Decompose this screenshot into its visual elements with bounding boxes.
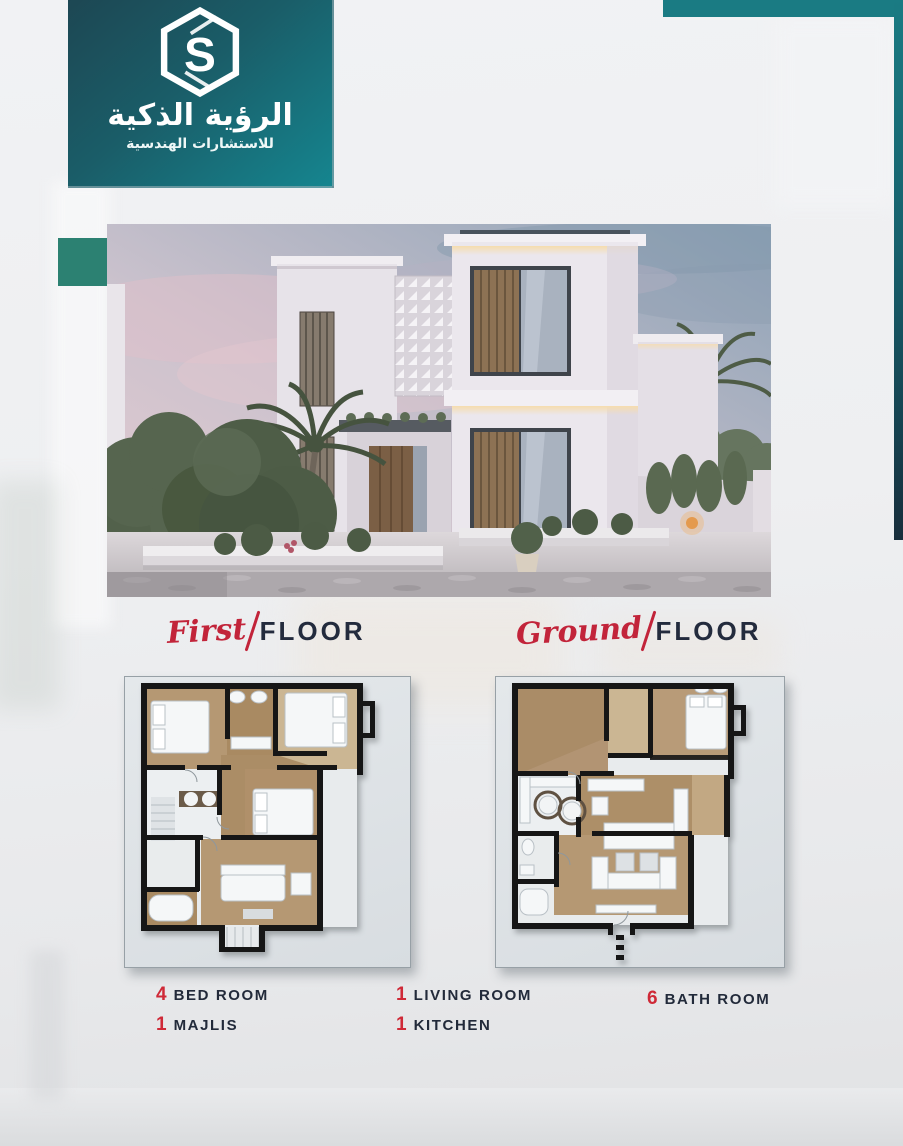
- feature-majlis-count: 1: [156, 1014, 167, 1036]
- feature-bedrooms: 4 BED ROOM: [156, 984, 269, 1006]
- feature-living-room: 1 LIVING ROOM: [396, 984, 532, 1006]
- ground-floor-caps: FLOOR: [656, 616, 762, 647]
- feature-bathrooms-label: BATH ROOM: [665, 991, 771, 1008]
- logo-hexagon-s-icon: S: [154, 6, 246, 98]
- feature-majlis-label: MAJLIS: [174, 1017, 239, 1034]
- background-ghost-foliage: [0, 480, 60, 710]
- top-accent-bar: [663, 0, 895, 17]
- ground-floor-label: Ground FLOOR: [495, 608, 783, 654]
- feature-kitchen: 1 KITCHEN: [396, 1014, 491, 1036]
- feature-kitchen-label: KITCHEN: [414, 1017, 492, 1034]
- feature-kitchen-count: 1: [396, 1014, 407, 1036]
- green-accent-square: [58, 238, 112, 286]
- feature-living-room-label: LIVING ROOM: [414, 987, 532, 1004]
- first-floor-caps: FLOOR: [260, 616, 366, 647]
- first-floor-label: First FLOOR: [124, 608, 409, 654]
- ground-floor-flourish: [640, 611, 656, 652]
- ground-floor-plan-illustration: [496, 677, 784, 967]
- logo-subtitle-arabic: للاستشارات الهندسية: [126, 135, 274, 153]
- villa-photo: [107, 224, 771, 597]
- logo-monogram: S: [184, 29, 216, 82]
- feature-bedrooms-count: 4: [156, 984, 167, 1006]
- feature-bathrooms: 6 BATH ROOM: [647, 988, 770, 1010]
- right-accent-bar: [894, 0, 903, 540]
- feature-living-room-count: 1: [396, 984, 407, 1006]
- background-ghost-pavement: [0, 1088, 903, 1146]
- feature-majlis: 1 MAJLIS: [156, 1014, 238, 1036]
- ground-floor-script: Ground: [516, 610, 644, 652]
- background-ghost-pillar: [30, 950, 64, 1100]
- first-floor-plan-card: [124, 676, 411, 968]
- ground-floor-plan-card: [495, 676, 785, 968]
- logo-title-arabic: الرؤية الذكية: [107, 100, 293, 132]
- background-ghost-wall: [775, 17, 895, 207]
- logo-badge: S الرؤية الذكية للاستشارات الهندسية: [68, 0, 334, 188]
- first-floor-script: First: [167, 611, 248, 650]
- first-floor-plan-illustration: [125, 677, 410, 967]
- feature-bathrooms-count: 6: [647, 988, 658, 1010]
- first-floor-flourish: [244, 611, 260, 652]
- villa-scene-illustration: [107, 224, 771, 597]
- feature-bedrooms-label: BED ROOM: [174, 987, 269, 1004]
